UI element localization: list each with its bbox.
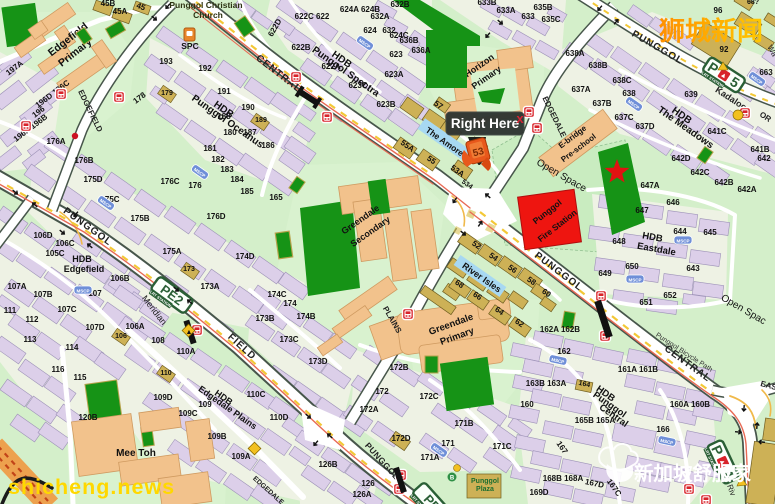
svg-text:183: 183 xyxy=(220,165,234,174)
svg-text:96: 96 xyxy=(714,6,723,15)
svg-text:622B: 622B xyxy=(291,43,310,52)
svg-text:126B: 126B xyxy=(318,460,337,469)
svg-text:650: 650 xyxy=(625,262,639,271)
svg-text:165B 165A: 165B 165A xyxy=(575,416,616,425)
svg-text:114: 114 xyxy=(66,343,79,352)
svg-text:624: 624 xyxy=(363,26,377,35)
svg-text:637B: 637B xyxy=(592,99,611,108)
svg-text:168B 168A: 168B 168A xyxy=(543,474,584,483)
svg-text:109C: 109C xyxy=(178,409,197,418)
svg-text:633A: 633A xyxy=(496,6,515,15)
svg-text:111: 111 xyxy=(4,306,17,315)
svg-text:160A 160B: 160A 160B xyxy=(670,400,710,409)
svg-text:92: 92 xyxy=(720,45,729,54)
svg-text:MSCP: MSCP xyxy=(676,238,689,243)
svg-text:623C: 623C xyxy=(348,81,367,90)
svg-text:184: 184 xyxy=(230,175,244,184)
svg-text:176: 176 xyxy=(188,181,202,190)
svg-text:169D: 169D xyxy=(529,488,548,497)
svg-text:642B: 642B xyxy=(714,178,733,187)
svg-text:180: 180 xyxy=(223,128,237,137)
svg-text:113: 113 xyxy=(24,335,37,344)
svg-text:635C: 635C xyxy=(541,15,560,24)
svg-text:163B 163A: 163B 163A xyxy=(526,379,567,388)
svg-text:636B: 636B xyxy=(399,36,418,45)
svg-text:649: 649 xyxy=(598,269,612,278)
svg-text:160: 160 xyxy=(520,400,534,409)
svg-text:68?: 68? xyxy=(747,0,759,6)
svg-text:651: 651 xyxy=(639,298,653,307)
svg-text:105C: 105C xyxy=(45,249,64,258)
svg-text:622C 622: 622C 622 xyxy=(295,12,330,21)
svg-text:165: 165 xyxy=(269,193,283,202)
svg-text:112: 112 xyxy=(26,315,39,324)
svg-text:171C: 171C xyxy=(492,442,511,451)
svg-text:175A: 175A xyxy=(162,247,181,256)
svg-text:45A: 45A xyxy=(113,7,128,16)
svg-text:109D: 109D xyxy=(153,393,172,402)
svg-text:Right Here: Right Here xyxy=(451,116,520,131)
svg-text:636A: 636A xyxy=(411,46,430,55)
svg-text:Punggol Christian: Punggol Christian xyxy=(169,0,242,10)
svg-text:191: 191 xyxy=(217,87,231,96)
svg-text:181: 181 xyxy=(203,144,217,153)
svg-text:109A: 109A xyxy=(231,452,250,461)
svg-text:110D: 110D xyxy=(270,413,289,422)
svg-text:644: 644 xyxy=(673,227,687,236)
svg-text:107D: 107D xyxy=(85,323,104,332)
svg-text:176A: 176A xyxy=(46,137,65,146)
svg-text:622A: 622A xyxy=(321,62,340,71)
svg-text:新加坡舒服家: 新加坡舒服家 xyxy=(634,462,752,485)
svg-text:663: 663 xyxy=(759,68,773,77)
svg-text:643: 643 xyxy=(686,264,700,273)
svg-text:632A: 632A xyxy=(370,12,389,21)
svg-text:189: 189 xyxy=(255,117,267,124)
svg-text:638A: 638A xyxy=(565,49,584,58)
svg-text:Plaza: Plaza xyxy=(476,486,494,493)
svg-text:174B: 174B xyxy=(296,312,315,321)
svg-text:635B: 635B xyxy=(533,3,552,12)
svg-text:176B: 176B xyxy=(74,156,93,165)
svg-text:106D: 106D xyxy=(33,231,52,240)
svg-text:637A: 637A xyxy=(571,85,590,94)
svg-text:171: 171 xyxy=(441,439,455,448)
svg-text:188: 188 xyxy=(217,112,231,121)
svg-text:x: x xyxy=(516,111,524,126)
svg-text:115: 115 xyxy=(74,373,87,382)
svg-text:176C: 176C xyxy=(160,177,179,186)
svg-text:172: 172 xyxy=(375,387,389,396)
svg-text:633B: 633B xyxy=(477,0,496,7)
svg-text:110A: 110A xyxy=(177,347,196,356)
svg-text:173: 173 xyxy=(183,266,195,273)
svg-text:652: 652 xyxy=(663,291,677,300)
svg-text:637D: 637D xyxy=(635,122,654,131)
svg-text:126A: 126A xyxy=(352,490,371,499)
svg-text:172D: 172D xyxy=(391,434,410,443)
svg-text:161A 161B: 161A 161B xyxy=(618,365,658,374)
svg-text:646: 646 xyxy=(666,198,680,207)
svg-text:Punggol: Punggol xyxy=(471,478,499,485)
svg-text:110: 110 xyxy=(160,370,171,377)
svg-text:176D: 176D xyxy=(206,212,225,221)
svg-text:645: 645 xyxy=(703,228,717,237)
svg-text:186: 186 xyxy=(261,141,275,150)
svg-text:106A: 106A xyxy=(125,322,144,331)
svg-text:642C: 642C xyxy=(690,168,709,177)
svg-text:623: 623 xyxy=(389,50,403,59)
svg-text:182: 182 xyxy=(211,155,225,164)
svg-text:▲: ▲ xyxy=(186,329,193,336)
svg-text:109B: 109B xyxy=(207,432,226,441)
svg-text:Mee Toh: Mee Toh xyxy=(116,448,156,459)
svg-text:173D: 173D xyxy=(308,357,327,366)
svg-text:638B: 638B xyxy=(588,61,607,70)
svg-text:SPC: SPC xyxy=(181,41,198,51)
svg-text:107B: 107B xyxy=(33,290,52,299)
svg-text:173A: 173A xyxy=(200,282,219,291)
svg-text:106B: 106B xyxy=(110,274,129,283)
svg-text:107A: 107A xyxy=(7,282,26,291)
svg-text:shicheng.news: shicheng.news xyxy=(8,475,175,499)
svg-text:MSCP: MSCP xyxy=(628,277,641,282)
svg-text:642D: 642D xyxy=(671,154,690,163)
svg-text:173B: 173B xyxy=(255,314,274,323)
svg-text:639: 639 xyxy=(684,90,698,99)
svg-text:108: 108 xyxy=(151,336,165,345)
svg-text:174D: 174D xyxy=(235,252,254,261)
svg-text:623A: 623A xyxy=(384,70,403,79)
svg-text:171B: 171B xyxy=(454,419,473,428)
svg-text:641B: 641B xyxy=(750,145,769,154)
svg-text:Church: Church xyxy=(193,10,223,20)
svg-text:107C: 107C xyxy=(57,305,76,314)
svg-text:110C: 110C xyxy=(247,390,266,399)
svg-text:638C: 638C xyxy=(612,76,631,85)
svg-text:174: 174 xyxy=(283,299,297,308)
svg-text:109: 109 xyxy=(198,400,212,409)
svg-text:106C: 106C xyxy=(55,239,74,248)
svg-text:106: 106 xyxy=(115,333,127,340)
svg-text:633: 633 xyxy=(521,12,535,21)
svg-text:185: 185 xyxy=(240,187,254,196)
svg-text:179: 179 xyxy=(161,90,173,97)
svg-text:MSCP: MSCP xyxy=(76,288,89,293)
svg-text:172B: 172B xyxy=(389,363,408,372)
svg-text:647: 647 xyxy=(635,206,649,215)
svg-text:632B: 632B xyxy=(390,0,409,9)
svg-text:166: 166 xyxy=(656,425,670,434)
svg-text:642: 642 xyxy=(757,154,771,163)
svg-text:162: 162 xyxy=(557,347,571,356)
svg-text:190: 190 xyxy=(241,103,255,112)
svg-text:647A: 647A xyxy=(640,181,659,190)
svg-text:狮城新闻: 狮城新闻 xyxy=(659,16,763,46)
svg-text:173C: 173C xyxy=(279,335,298,344)
svg-text:171A: 171A xyxy=(420,453,439,462)
svg-text:193: 193 xyxy=(159,57,173,66)
svg-text:641C: 641C xyxy=(707,127,726,136)
svg-text:642A: 642A xyxy=(737,185,756,194)
svg-text:120B: 120B xyxy=(78,413,97,422)
svg-text:632: 632 xyxy=(382,26,396,35)
svg-text:637C: 637C xyxy=(614,113,633,122)
svg-text:172A: 172A xyxy=(359,405,378,414)
svg-text:192: 192 xyxy=(198,64,212,73)
svg-text:174C: 174C xyxy=(267,290,286,299)
svg-text:175B: 175B xyxy=(130,214,149,223)
svg-text:172C: 172C xyxy=(419,392,438,401)
svg-text:B: B xyxy=(450,476,455,482)
svg-text:126: 126 xyxy=(361,479,375,488)
svg-text:162A 162B: 162A 162B xyxy=(540,325,580,334)
svg-text:187: 187 xyxy=(243,128,257,137)
svg-text:623B: 623B xyxy=(376,100,395,109)
svg-text:116: 116 xyxy=(52,365,65,374)
svg-text:175D: 175D xyxy=(83,175,102,184)
svg-text:HDB: HDB xyxy=(72,254,92,264)
svg-text:648: 648 xyxy=(612,237,626,246)
svg-text:Edgefield: Edgefield xyxy=(64,264,105,274)
